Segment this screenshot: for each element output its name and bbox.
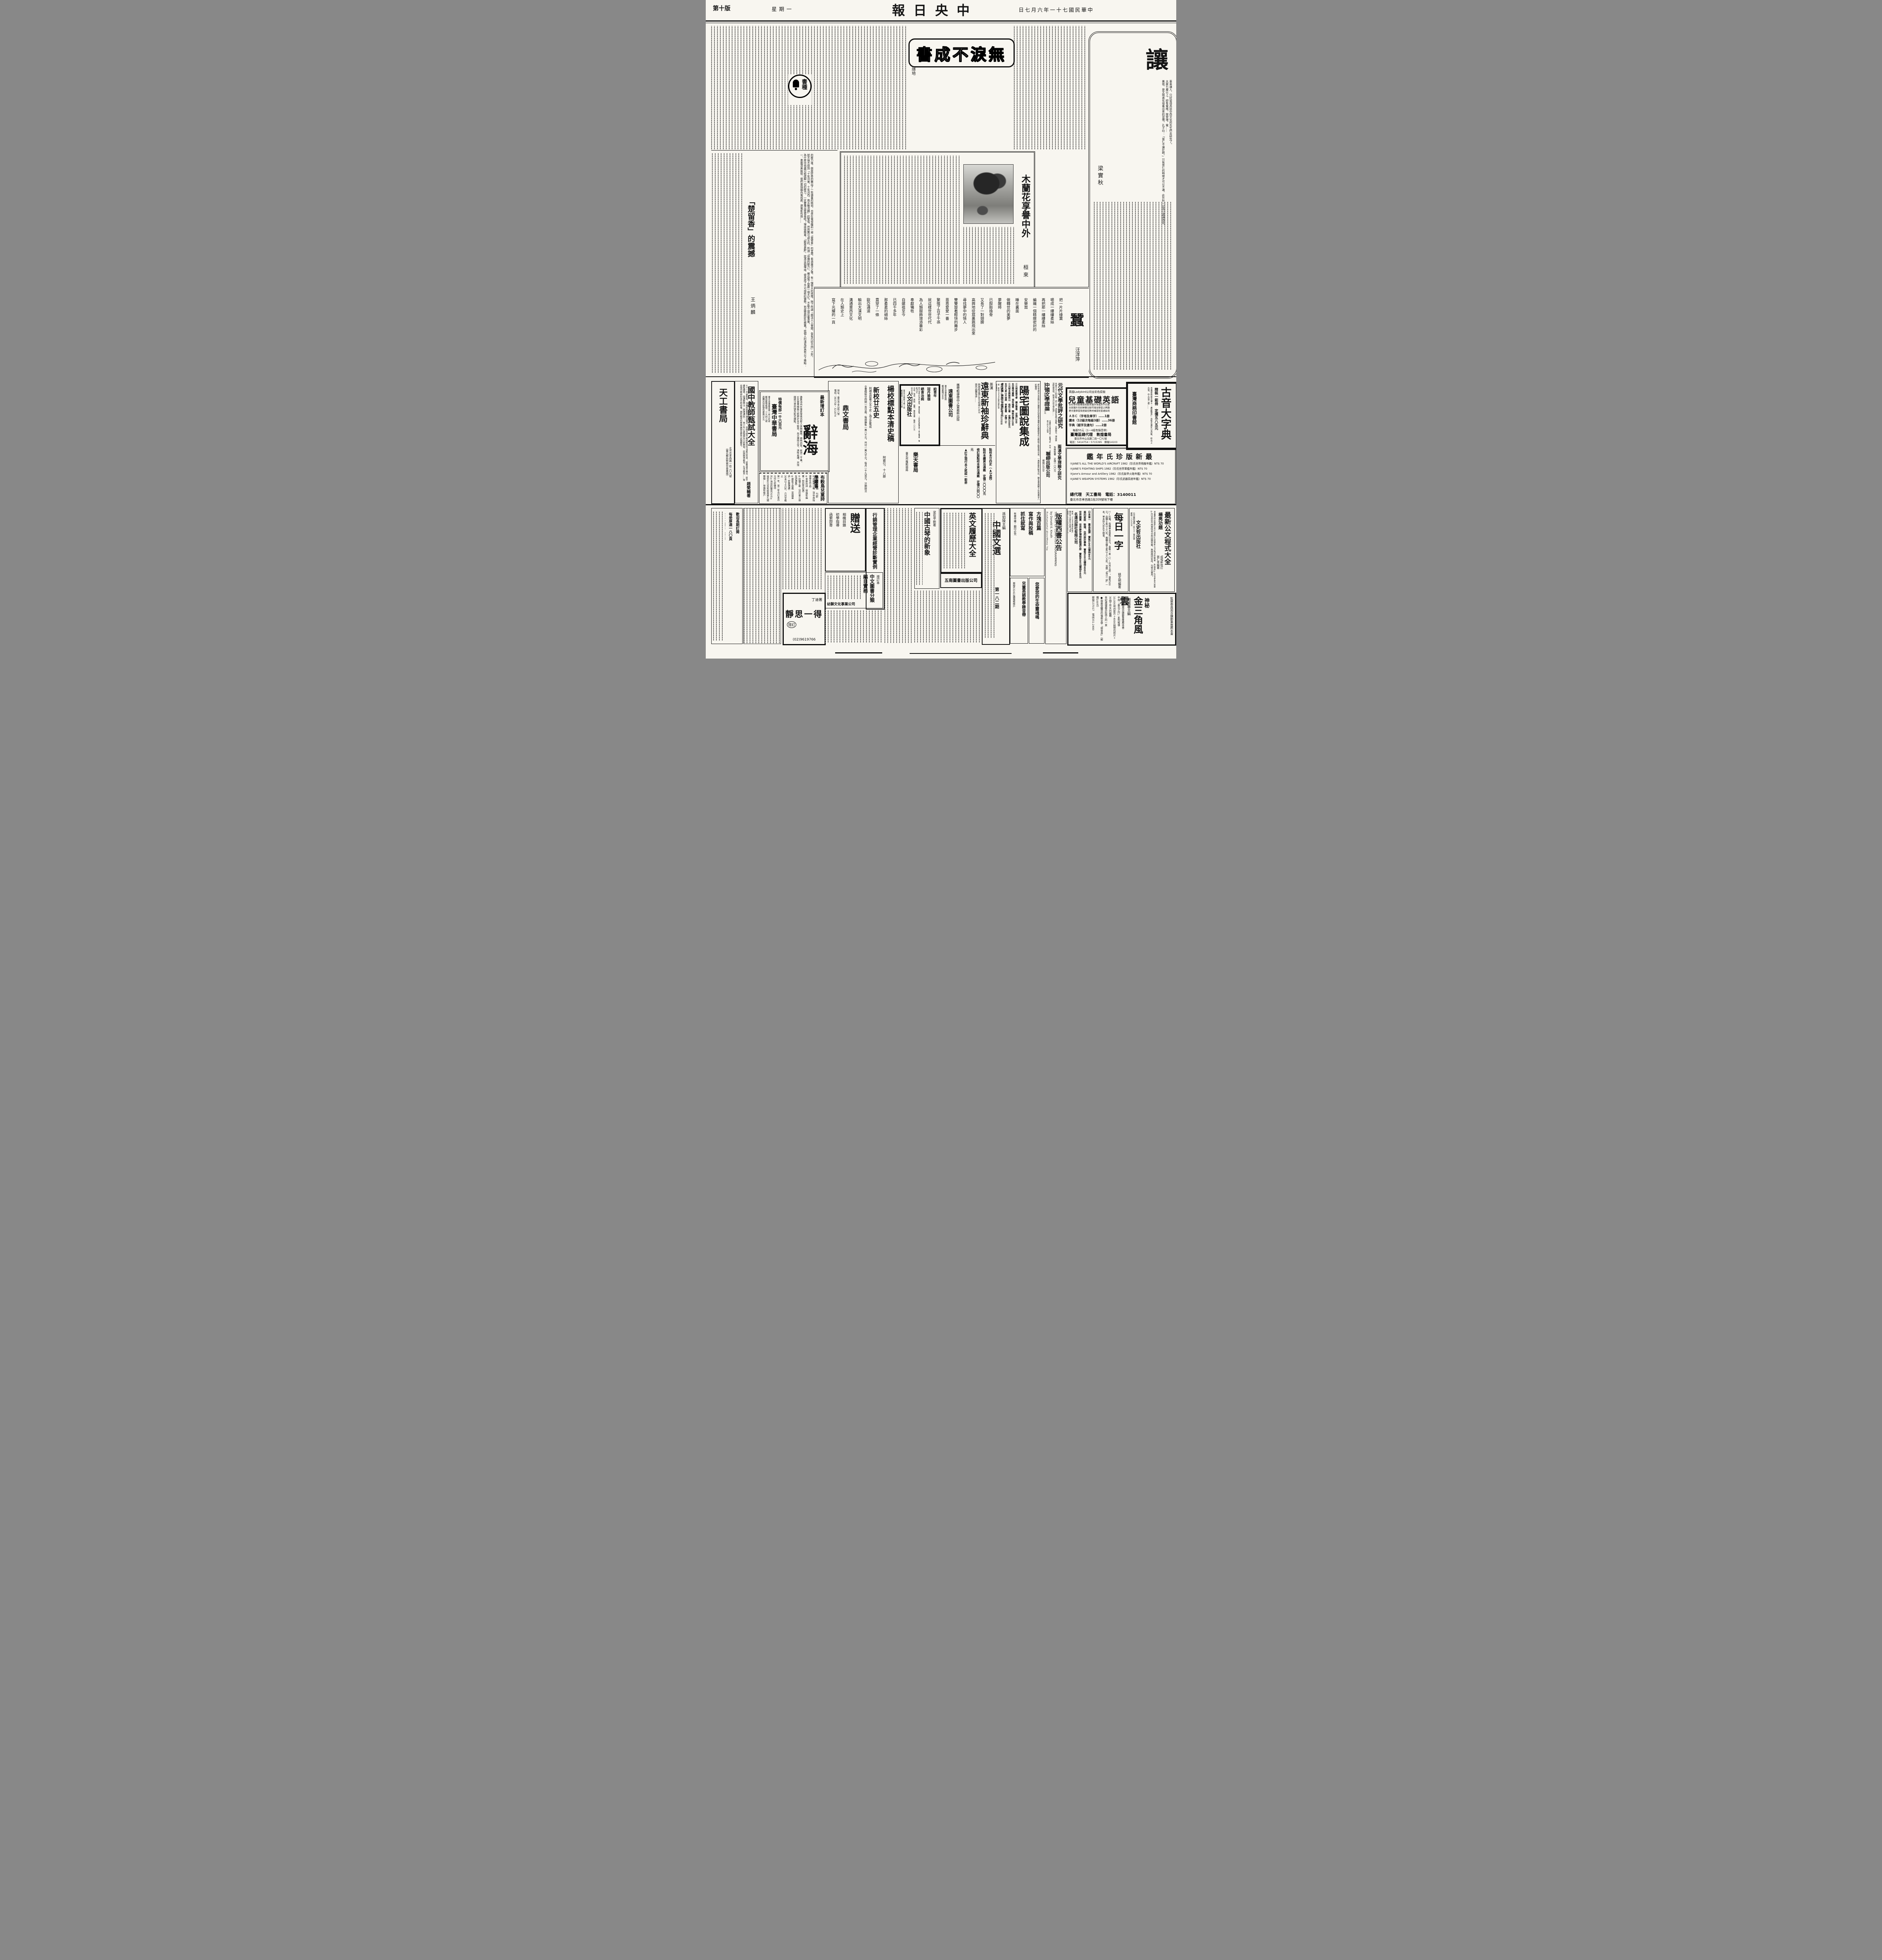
ad-renwen-pub: 人文出版社 [905, 391, 912, 438]
masthead: 報日央中 [870, 0, 1000, 19]
ad-text-placeholder [914, 590, 980, 643]
ad-lianjing: 元代文學批評之研究 本書凡元人的別集、詩人評、詞曲評皆盡力蒐集，大量論文，博採衆… [1041, 381, 1064, 503]
title-chuliuxiang: 「楚留香」的震撼 [746, 198, 756, 292]
ad-guozhong-author: 趙榮輔著 [745, 482, 751, 500]
ad-ladybird: 英國Ladybird公司全彩色原版 兒童基礎英語 從初學到能看能說能寫循序漸進系… [1066, 387, 1128, 446]
ad-banquan: 版權西書公告 THE ART OF COMPUTER PROGRAMMING b… [1045, 508, 1066, 644]
ad-janes-addr: 臺北市忠孝西路1段209號地下樓 [1070, 497, 1172, 502]
text-columns-placeholder [985, 513, 995, 638]
ad-yangzhai: 把住宅與河水道路山丘橋樑巨石怪樹池塘等的各種關係均以精繪之圖表現出來，一看卽能判… [996, 381, 1041, 503]
article-mulan-box: 木蘭花享譽中外 桓來 [840, 151, 1035, 289]
ad-janes: 鑑年氏珍版新最 ①JANE'S ALL THE WORLD'S AIRCRAFT… [1066, 448, 1176, 505]
ad-bugu: 布穀鳥兒童詩學叢書 林煥彰主編 七折 ③母鴨帶小鴨（洪中周指導學生作品） ④季節… [759, 473, 827, 504]
ad-yangzhai-contact: 贈 郵撥104266石室出版社收 書目備索 [996, 384, 999, 501]
ad-lianjing-body1: 本書凡元人的別集、詩人評、詞曲評皆盡力蒐集，大量論文，博採衆說較論長短，盼望元代… [1052, 383, 1057, 441]
ad-jin-recommend: 監察委員周百鍊鄭重推薦本書 [1152, 597, 1174, 641]
poem-can-box: 蠶 汪洋萍 把一片片綠葉 嚼成一縷縷柔絲 再把那一縷縷柔絲 編織一個精緻密封的 … [814, 287, 1089, 378]
ad-jingsi-edition: 增訂 [787, 621, 796, 628]
ads-top-rule [706, 376, 1176, 377]
ad-subscribe: 歡迎長期訂閱 每册厚達一八〇頁 全年六期彩色精印 每册定價一〇〇元 [711, 508, 743, 644]
ad-xingxiao-title: 行銷管理企業經營診斷實例 [872, 513, 878, 605]
ad-guyin-title: 古音大字典 [1157, 387, 1173, 444]
ad-zhongwenxuan: 孫如陵主編 中國文選 第一八二期 [982, 508, 1010, 645]
ad-ladybird-tel: 電話：5414754・5715395 郵撥14103 [1070, 440, 1124, 444]
title-rang: 讓 [1146, 42, 1168, 74]
ad-cihai-body: 邀集海內外專家學者百餘人參與編務，費時四年，耗資二千萬。16K豪華精裝三鉅册計五… [780, 396, 802, 466]
ad-lianjing-post: 郵撥10559 [1041, 459, 1045, 495]
ad-dingwen-sub1: 附索引，十八册 [882, 456, 887, 499]
ad-guozhong: 國中教師甄試大全 七十一年最新版，本書依據臺灣省及臺北、高雄市國中教師甄試科目編… [735, 381, 758, 503]
ad-renwen-titles: 給青年 冠丹瑜珈 絕食治病 斷食 我的絕食心得 [920, 387, 938, 442]
text-columns-placeholder [1014, 26, 1085, 150]
ad-meiri-body: ㈠—㈤輯，每輯單本實售100元，盒裝一套（㈠—㈤共五册），實售500元，函購十套… [1095, 511, 1111, 589]
ad-zengsong-title: 贈送 [847, 513, 862, 540]
ad-yangzhai-title: 陽宅圖說集成 [1016, 385, 1031, 499]
article-rang-box: 讓 梁實秋 車車讓人，只好留待高談中西文化的先生們去研究了。 大廈七層以上，卽有… [1088, 31, 1176, 379]
ad-text-placeholder [825, 610, 882, 643]
header-rule-thin [706, 23, 1176, 23]
ad-jingsi: 丁迪著 靜思一得 增訂 (02)9619766 [783, 593, 826, 645]
ad-yuandong-tag: 攜帶輕便懷中之寶最新出版 [956, 383, 960, 442]
ad-guyin-pub: 臺灣商務印書館 [1131, 392, 1138, 440]
ad-ertong-title: 兒童英語教學錄音帶 [1020, 581, 1026, 640]
book-seed-seal: 書種 [788, 74, 812, 105]
text-columns-placeholder [916, 512, 923, 585]
ad-yuandong-body: 辭典紙定價180元特價135元 國內函購每册…… [972, 383, 980, 442]
ad-ladybird-title: 兒童基礎英語 [1068, 394, 1125, 405]
byline-wangbinglin: 王炳麟 [750, 297, 756, 319]
edition-label: 第十版 [713, 4, 730, 12]
article-wulei-headline-box: 書成不淚無 [908, 38, 1015, 67]
ad-guozhong-body: 七十一年最新版，本書依據臺灣省及臺北、高雄市國中教師甄試科目編訂而成：國教基本概… [737, 385, 748, 483]
ad-letian-items: 點校本廿四史（▲24開） 點校本續資治通鑑 定價二〇〇〇元 修訂版點校本資治通鑑… [927, 448, 994, 501]
ad-renwen: 給青年 冠丹瑜珈 絕食治病 斷食 我的絕食心得 時代青年的良師益友，暮鼓晨鐘。—… [899, 384, 940, 446]
header-rule-thick [706, 20, 1176, 22]
ad-jingsi-author: 丁迪著 [812, 597, 822, 602]
ad-tiangong-lines: 北市忠孝西路一段二〇九號 （臺北郵局對面中華書城） [714, 447, 732, 500]
ads-bottom-rule [706, 504, 1176, 505]
ad-mingyuan: 日本第一 蕭長風譯 實售100元優待80元 美的家庭 裝璜、住的設計專集 實售5… [1067, 508, 1092, 592]
ad-yingwen: 英文履歷大全 [940, 508, 983, 573]
ad-gongwen-pub: 文史哲出版社 [1135, 520, 1142, 579]
ad-text-placeholder [885, 508, 913, 643]
ad-dingwen-lines: 地址：臺北市金山街八號 電話：393758・321874 [831, 389, 839, 495]
ad-guqin: 梁在平新著 中國古琴的新象 [914, 508, 939, 589]
ad-jin-lines: 監察委員周百鍊鄭重推薦本書 中視「泰北之行」系列報導 10,000呎的影片＋40… [1070, 596, 1125, 642]
text-columns-placeholder [1094, 201, 1172, 370]
ad-bugu-items: ③母鴨帶小鴨（洪中周指導學生作品） ④季節的詩（林煥彰編著・附四季詩選） ⑤鈴鐺… [761, 475, 815, 502]
ad-lianjing-credit3: 朱榮智著 定價一〇〇元 [1053, 446, 1056, 492]
ad-mingyuan-pub: 名遠出版社有限公司 [1073, 512, 1078, 588]
ad-gongwen-lines: 北市羅斯福路一段七十二巷四號 郵撥一六九九五 [1130, 512, 1135, 587]
ad-meiri-author: 姚文明編著 [1117, 573, 1122, 590]
ad-dingwen-sub2: 附補充原著之五十史・為正史集成 [868, 387, 872, 465]
ad-shengming-title: 您愛您的生命靈魂嗎 [1034, 582, 1040, 640]
ad-banquan-lines: THE ART OF COMPUTER PROGRAMMING by Donal… [1046, 512, 1057, 640]
ad-subscribe-lines: 歡迎長期訂閱 每册厚達一八〇頁 全年六期彩色精印 每册定價一〇〇元 [725, 512, 741, 640]
ad-tiangong-name: 天工書局 [716, 388, 728, 443]
ad-meiri: 每日一字 姚文明編著 ㈠—㈤輯，每輯單本實售100元，盒裝一套（㈠—㈤共五册），… [1093, 508, 1128, 592]
article-chu-region: 「楚留香」的震撼 王炳麟 的壓力後，倒是好奇的騰出了一些讀書的時刻，也坐在電視機… [711, 151, 814, 376]
ad-wunan-pub: 五南圖書出版公司 [941, 577, 981, 583]
ad-mingyuan-books: 日本第一 蕭長風譯 實售100元優待80元 美的家庭 裝璜、住的設計專集 實售5… [1077, 511, 1091, 588]
ad-guyin-body: 本書係根據沈兼士「廣韻聲系」及黎氏書加以改編，綜合上古音、中古音二者…… [1144, 387, 1152, 444]
ad-bugu-sub: 林煥彰主編 七折 [815, 476, 819, 502]
ad-mingyuan-lines: 郵撥：523665黃啓彬帳戶 臺北市士林區文林路79號 電話：八八一〇八二五一六 [1068, 511, 1073, 588]
ad-yuandong-title: 遠東新袖珍辭典 [979, 382, 990, 443]
ad-yangzhai-preview: 把住宅與河水道路山丘橋樑巨石怪樹池塘等的各種關係均以精繪之圖表現出來，一看卽能判… [1032, 384, 1039, 501]
ad-lianjing-credit2: 劉若愚著・杜國清譯 定價一五〇元 [1042, 383, 1046, 441]
ad-sanshu-titles: 方塊百篇 寫作與投稿 抓住就寫 [1021, 512, 1043, 573]
poem-author: 汪洋萍 [1074, 347, 1081, 371]
ad-dingwen-pub: 鼎文書局 [840, 405, 850, 452]
text-columns-placeholder [963, 227, 1014, 284]
ad-jin-editor: 趙滋蕃主編 [1126, 598, 1131, 641]
ad-cihai-pub: 臺灣中華書局 [770, 404, 778, 463]
photo-magnolia [963, 164, 1014, 224]
text-columns-placeholder [713, 512, 724, 641]
ad-ertong-note: 郵撥632422魏羅敏帳戶 [1012, 582, 1015, 640]
ad-janes-agent: 總代理 天工書局 電話：3140011 [1070, 491, 1172, 497]
ad-gongwen-title: 最新公文程式大全 [1162, 512, 1172, 588]
ad-lianjing-b3: 兩漢文學理論之研究 [1056, 445, 1062, 492]
text-columns-placeholder [828, 575, 863, 599]
ad-jinsanjiao: 神秘 金三角風雲 趙滋蕃主編 監察委員周百鍊鄭重推薦本書 中視「泰北之行」系列報… [1067, 593, 1176, 646]
ad-guqin-credit: 梁在平新著 [932, 511, 937, 534]
ad-yuandong-pub: 遠東圖書公司 [947, 389, 954, 440]
ad-guyin-sub: 精裝一鉅冊 定價五八五元 [1154, 388, 1159, 443]
ad-ladybird-addr: 臺北市中山北路二段一〇七號 [1074, 437, 1124, 440]
scan-mark [835, 652, 882, 653]
ad-cihai-lines: 臺北市重慶南路一段九四號 郵政劃撥帳號：三九四二號 函購另加掛號包裹費56元 [762, 396, 770, 466]
date-line: 日七月六年一十七國民華中 [1019, 6, 1094, 13]
ad-janes-title: 鑑年氏珍版新最 [1067, 451, 1175, 461]
ad-zengsong-lines: 相機目錄 初學指導 函索卽寄 [828, 513, 847, 567]
ad-letian-pub: 樂天書局 [911, 452, 919, 495]
scan-mark [1043, 652, 1078, 653]
ad-ladybird-items: ＡＢＣ（字母及單字）……1册 讀本（12級次每級3册）……36册 字典（認字及連… [1069, 414, 1124, 427]
weekday-label: 星期一 [772, 5, 794, 13]
ad-gongwen: 最新公文程式大全 楊亮功題 成惕軒校訂 張仁青編著 本書悉依民國63年行政院訂定… [1129, 508, 1175, 592]
text-columns-placeholder [844, 156, 960, 284]
ad-tiangong: 天工書局 北市忠孝西路一段二〇九號 （臺北郵局對面中華書城） [711, 381, 735, 504]
ad-letian: 點校本廿四史（▲24開） 點校本續資治通鑑 定價二〇〇〇元 修訂版點校本資治通鑑… [899, 445, 995, 503]
ad-sanshu: 方塊百篇 寫作與投稿 抓住就寫 有著作權・翻印必究 [1010, 508, 1045, 576]
ad-guyin: 古音大字典 精裝一鉅冊 定價五八五元 本書係根據沈兼士「廣韻聲系」及黎氏書加以改… [1126, 382, 1176, 450]
ad-yuandong-lines: 臺北市重慶南路 郵政劃撥5669 [939, 385, 946, 441]
ad-yingwen-title: 英文履歷大全 [967, 512, 977, 569]
byline-huanlai: 桓來 [1021, 265, 1029, 282]
text-columns-placeholder [944, 512, 966, 569]
text-columns-placeholder [712, 153, 743, 373]
ad-ertong: 兒童英語教學錄音帶 郵撥632422魏羅敏帳戶 [1010, 578, 1028, 644]
ad-shengming: 您愛您的生命靈魂嗎 [1029, 578, 1045, 644]
ad-ladybird-lines: 從初學到能看能說能寫循序漸進系列完整 全部圖片色彩鮮艷生動可增加學習之興趣 是兒… [1069, 404, 1124, 413]
ad-letian-addr: 臺北市羅斯福路 [905, 452, 909, 495]
ad-renwen-lines: 臺中市忠明路20巷11號 郵政劃匯二八〇〇〇號 [901, 390, 905, 441]
ad-gongwen-credits: 成惕軒校訂 張仁青編著 [1156, 555, 1163, 589]
ad-meiri-title: 每日一字 [1111, 512, 1125, 571]
ad-guqin-title: 中國古琴的新象 [922, 512, 931, 586]
ad-gongwen-calligraphy: 楊亮功題 [1157, 512, 1163, 552]
ad-janes-items: ①JANE'S ALL THE WORLD'S AIRCRAFT 1982（珍氏… [1070, 461, 1172, 482]
poem-title: 蠶 [1070, 309, 1084, 329]
ad-yangzhai-books: 三元飛星陽宅學 鐘友聯著 定價1200 玄空陽宅闡微 張哲鳴著 精裝定價1200… [1000, 383, 1017, 501]
seal-text: 書種 [800, 79, 808, 90]
ad-yangzhai-note: 預約陸佰元至月底止 鐘友聯編・梁詩涵繪圖 [999, 384, 1003, 501]
ad-wunan: 五南圖書出版公司 [940, 573, 982, 588]
ad-zengsong: 贈送 相機目錄 初學指導 函索卽寄 [825, 508, 866, 572]
scan-mark [910, 653, 1012, 654]
newspaper-page: 第十版 星期一 報日央中 日七月六年一十七國民華中 書種 書成不淚無 隱地 讓 … [706, 0, 1176, 659]
ad-text-placeholder [783, 508, 823, 590]
seal-circle: 書種 [788, 74, 812, 98]
ad-yuandong: 英漢 遠東新袖珍辭典 辭典紙定價180元特價135元 國內函購每册…… 攜帶輕便… [939, 381, 994, 444]
ad-xingxiao: 行銷管理企業經營診斷實例 [866, 508, 885, 610]
ad-youshi-pub: 幼獅文化事業公司 [827, 601, 866, 606]
ad-dingwen-body: 全書精裝廿四開一百廿册，每部廉售一萬八千元，共付一萬九千元，每月一千九百元，分期… [851, 385, 867, 499]
title-mulan: 木蘭花享譽中外 [1018, 174, 1032, 261]
ad-cihai-pre: 最新增訂本 [819, 395, 825, 423]
ad-sanshu-note: 有著作權・翻印必究 [1013, 512, 1017, 572]
ad-lianjing-pub: 聯經出版公司 [1045, 452, 1051, 495]
ad-jingsi-tel: (02)9619766 [784, 638, 825, 642]
ad-gongwen-body: 本書悉依民國63年行政院訂定最新公文程式而編著，附錄有①20至64年試題②65至… [1141, 511, 1155, 589]
ad-ladybird-agent: 臺灣區總代理 敦煌書局 [1070, 432, 1124, 437]
headline-wulei: 書成不淚無 [910, 42, 1014, 65]
section-rule [711, 150, 837, 151]
bell-icon [793, 80, 799, 87]
ad-dingwen: 楊校標點本清史稿 附索引，十八册 新校廿五史 附補充原著之五十史・為正史集成 全… [828, 381, 899, 503]
article-chu-body: 的壓力後，倒是好奇的騰出了一些讀書的時刻，也坐在電視機前一窺「楚留香」的堂奧，看… [762, 154, 813, 373]
ad-text-placeholder [743, 508, 781, 644]
silkworm-illustration [817, 350, 997, 376]
ad-jingsi-title: 靜思一得 [784, 608, 825, 620]
byline-yindi: 隱地 [910, 67, 916, 79]
ad-cihai: 最新增訂本 辭海 邀集海內外專家學者百餘人參與編務，費時四年，耗資二千萬。16K… [759, 390, 830, 472]
